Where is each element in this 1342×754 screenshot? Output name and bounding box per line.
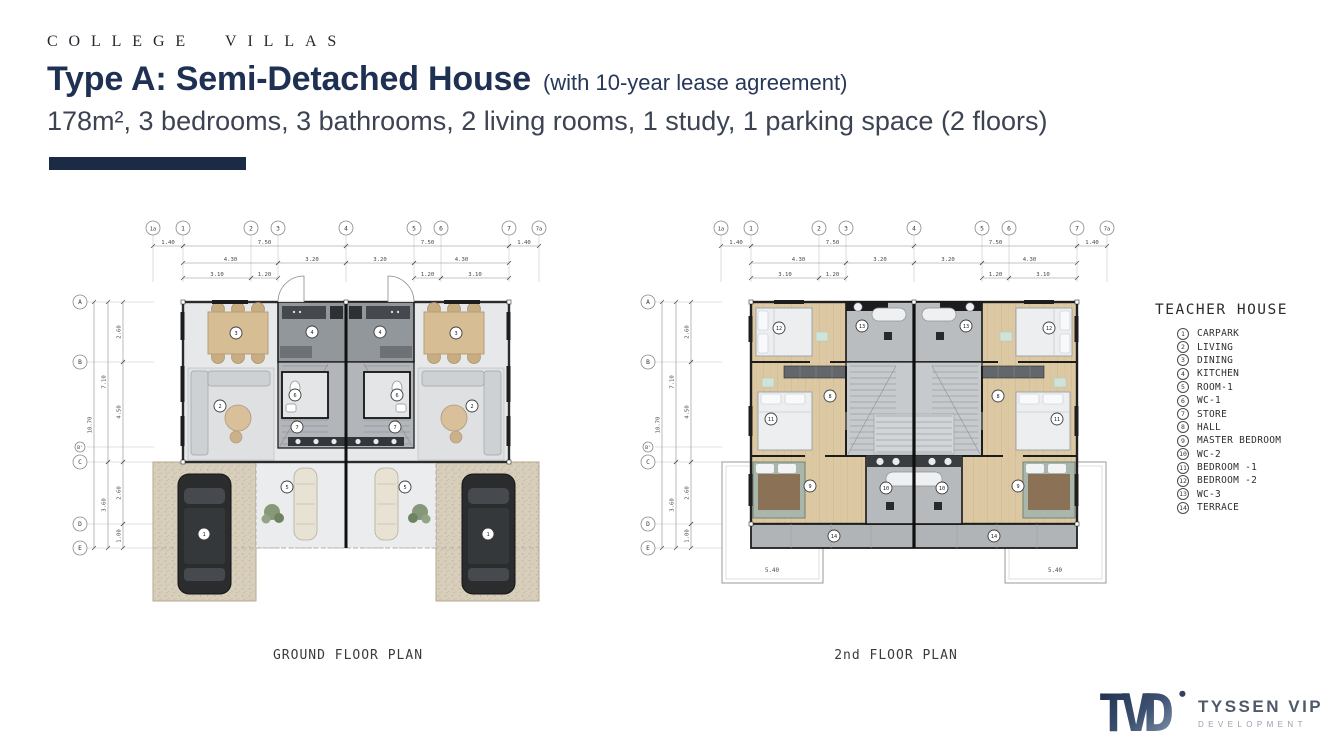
room-marker-number: 13 [859,324,865,330]
room-marker-number: 8 [996,394,999,400]
legend-item: 10WC-2 [1177,448,1340,461]
room-marker-number: 1 [486,532,489,538]
dim-label: 1.20 [826,272,839,278]
ground-floor-plan: 1a12345677a1.407.507.501.404.303.203.204… [66,216,601,618]
room-marker-number: 5 [285,485,288,491]
dim-label: 2 [249,225,253,232]
terrace-dim-label: 5.40 [1048,568,1062,574]
legend-item-label: ROOM-1 [1197,382,1233,393]
logo-wordmark: TYSSEN VIP DEVELOPMENT [1198,697,1323,729]
door-arc-left [278,276,304,302]
legend-item-number: 14 [1177,502,1189,514]
legend-item: 13WC-3 [1177,488,1340,501]
legend-item: 6WC-1 [1177,394,1340,407]
dim-label: 1.00 [117,529,123,542]
dim-label: 7.10 [670,375,676,388]
room-marker-number: 7 [393,425,396,431]
legend-item-number: 10 [1177,448,1189,460]
legend-item-label: STORE [1197,409,1227,420]
room-marker-number: 4 [310,330,313,336]
dim-label: 10.70 [88,417,94,434]
room-marker-number: 10 [883,486,889,492]
dim-label: 3.60 [670,498,676,511]
legend-item-label: BEDROOM -1 [1197,462,1257,473]
legend-item: 14TERRACE [1177,501,1340,514]
legend-item-label: WC-1 [1197,395,1221,406]
room-marker-number: 12 [776,326,782,332]
legend-item: 7STORE [1177,407,1340,420]
dim-label: 1a [150,226,156,232]
room-marker-number: 9 [808,484,811,490]
dim-label: 4.30 [1023,257,1036,263]
dim-label: 4 [912,225,916,232]
room-marker-number: 8 [828,394,831,400]
legend-item-label: DINING [1197,355,1233,366]
room-marker-number: 11 [768,417,774,423]
dim-label: 3 [276,225,280,232]
dim-label: B [646,359,650,366]
tvd-logo-mark: TVD [1096,682,1192,744]
dim-label: 5 [980,225,984,232]
legend-item: 8HALL [1177,421,1340,434]
dim-label: 4.30 [792,257,805,263]
legend-item: 2LIVING [1177,340,1340,353]
room-marker-number: 6 [395,393,398,399]
dim-label: 7.50 [421,240,434,246]
room-marker-number: 7 [295,425,298,431]
dim-label: 7.50 [989,240,1002,246]
legend-item-number: 7 [1177,408,1189,420]
living-set-left [188,368,274,460]
dim-label: 1 [749,225,753,232]
dim-label: 3.10 [468,272,481,278]
page-subtitle: 178m², 3 bedrooms, 3 bathrooms, 2 living… [47,106,1047,137]
legend-item: 12BEDROOM -2 [1177,474,1340,487]
room-marker-number: 3 [454,331,457,337]
room-marker-number: 13 [963,324,969,330]
dim-label: E [78,545,82,552]
dim-label: A [646,299,650,306]
dim-label: 4.30 [224,257,237,263]
terrace-dim-label: 5.40 [765,568,779,574]
bed-master-right [1023,462,1075,518]
legend-item-number: 4 [1177,368,1189,380]
dim-label: 7 [1075,225,1079,232]
legend: TEACHER HOUSE 1CARPARK2LIVING3DINING4KIT… [1155,302,1340,514]
legend-item-number: 8 [1177,421,1189,433]
legend-item-label: CARPARK [1197,328,1239,339]
dim-label: 1.40 [729,240,742,246]
legend-item-number: 13 [1177,488,1189,500]
dim-label: 7.50 [826,240,839,246]
legend-item: 4KITCHEN [1177,367,1340,380]
legend-item-label: TERRACE [1197,502,1239,513]
legend-item-number: 9 [1177,435,1189,447]
room-marker-number: 12 [1046,326,1052,332]
room-marker-number: 1 [202,532,205,538]
title-row: Type A: Semi-Detached House (with 10-yea… [47,60,847,99]
dim-label: 2.60 [685,486,691,499]
dim-label: 7.10 [102,375,108,388]
legend-item-label: WC-3 [1197,489,1221,500]
dim-label: 3.20 [873,257,886,263]
dim-label: 3.10 [778,272,791,278]
dim-label: 1.40 [161,240,174,246]
dim-label: 7.50 [258,240,271,246]
dim-label: 2.60 [117,486,123,499]
legend-item: 1CARPARK [1177,327,1340,340]
slide: COLLEGE VILLAS Type A: Semi-Detached Hou… [0,0,1342,754]
dim-label: 1.20 [258,272,271,278]
dim-label: 6 [1007,225,1011,232]
dim-label: 2.60 [117,325,123,338]
dim-label: 3.10 [210,272,223,278]
dim-label: 1.40 [517,240,530,246]
legend-item-label: WC-2 [1197,449,1221,460]
second-floor-caption: 2nd FLOOR PLAN [834,648,958,663]
dim-label: 1a [718,226,724,232]
legend-item-label: MASTER BEDROOM [1197,435,1281,446]
legend-title: TEACHER HOUSE [1155,302,1340,318]
legend-item: 5ROOM-1 [1177,381,1340,394]
second-floor-plan: 1a12345677a1.407.507.501.404.303.203.204… [634,216,1169,618]
dim-label: 7a [1104,226,1110,232]
dim-label: 3.60 [102,498,108,511]
dim-label: 4.50 [117,405,123,418]
dim-label: 3.10 [1036,272,1049,278]
legend-item-label: HALL [1197,422,1221,433]
ground-floor-caption: GROUND FLOOR PLAN [273,648,423,663]
room-marker-number: 10 [939,486,945,492]
room-marker-number: 14 [991,534,997,540]
legend-item: 11BEDROOM -1 [1177,461,1340,474]
legend-item-label: LIVING [1197,342,1233,353]
legend-item-number: 2 [1177,341,1189,353]
door-arc-right [388,276,414,302]
tvd-mark-text: TVD [1098,684,1172,744]
bed-master-left [753,462,805,518]
page-title: Type A: Semi-Detached House [47,60,531,99]
dim-label: C [646,459,650,466]
logo: TVD TYSSEN VIP DEVELOPMENT [1096,682,1323,744]
dim-label: 6 [439,225,443,232]
legend-item: 3DINING [1177,354,1340,367]
dim-label: E [646,545,650,552]
page-title-suffix: (with 10-year lease agreement) [543,70,847,96]
dim-label: 3.20 [941,257,954,263]
room-marker-number: 5 [403,485,406,491]
dim-label: 3.20 [305,257,318,263]
dim-label: 3.20 [373,257,386,263]
dim-label: D [646,521,650,528]
title-underline-bar [49,157,246,170]
dim-label: D [78,521,82,528]
room-marker-number: 6 [293,393,296,399]
dim-label: 4.30 [455,257,468,263]
legend-item-number: 1 [1177,328,1189,340]
legend-item: 9MASTER BEDROOM [1177,434,1340,447]
dim-label: 1.20 [989,272,1002,278]
dim-label: 7 [507,225,511,232]
legend-item-number: 3 [1177,354,1189,366]
brand-name: COLLEGE VILLAS [47,33,347,51]
dim-label: 4.50 [685,405,691,418]
dim-label: 7a [536,226,542,232]
room-marker-number: 2 [470,404,473,410]
legend-item-number: 5 [1177,381,1189,393]
living-set-right [418,368,504,460]
room-marker-number: 14 [831,534,837,540]
dim-label: 1.40 [1085,240,1098,246]
dim-label: B [78,359,82,366]
legend-item-number: 11 [1177,462,1189,474]
dim-label: 10.70 [656,417,662,434]
room-marker-number: 11 [1054,417,1060,423]
legend-list: 1CARPARK2LIVING3DINING4KITCHEN5ROOM-16WC… [1155,327,1340,514]
logo-subname: DEVELOPMENT [1198,720,1323,729]
dim-label: 3 [844,225,848,232]
legend-item-label: BEDROOM -2 [1197,475,1257,486]
dim-label: 2.60 [685,325,691,338]
legend-item-number: 6 [1177,395,1189,407]
dim-label: B' [77,445,83,451]
dim-label: 5 [412,225,416,232]
dim-label: 2 [817,225,821,232]
dim-label: 1.20 [421,272,434,278]
dim-label: 1.00 [685,529,691,542]
room-marker-number: 3 [234,331,237,337]
room-marker-number: 2 [218,404,221,410]
logo-dot [1179,691,1185,697]
room-marker-number: 9 [1016,484,1019,490]
dim-label: 1 [181,225,185,232]
logo-name: TYSSEN VIP [1198,697,1323,717]
legend-item-number: 12 [1177,475,1189,487]
legend-item-label: KITCHEN [1197,368,1239,379]
dim-label: A [78,299,82,306]
room-marker-number: 4 [378,330,381,336]
dim-label: 4 [344,225,348,232]
dim-label: C [78,459,82,466]
dim-label: B' [645,445,651,451]
